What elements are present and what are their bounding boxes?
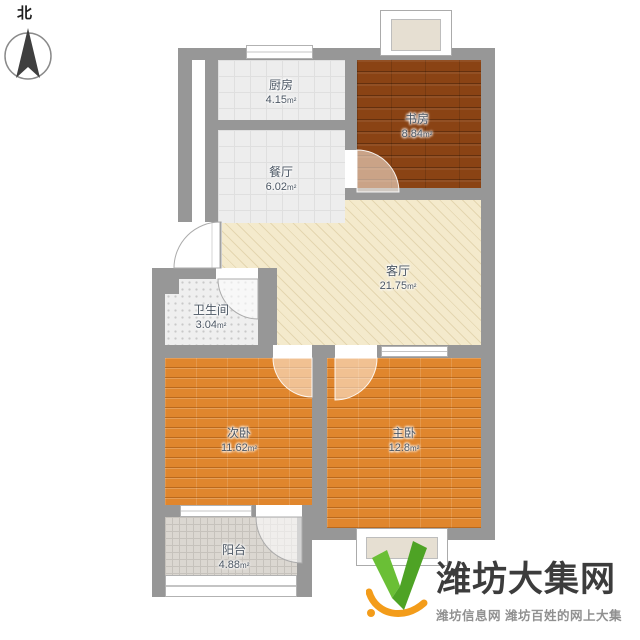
room-area-value: 11.62 [221, 442, 248, 454]
room-area-unit: m² [410, 444, 419, 453]
room-name: 卫生间 [193, 303, 229, 318]
wall-left-upper [178, 48, 192, 222]
wall-study-bottom [345, 188, 481, 200]
room-area-value: 21.75 [380, 280, 408, 292]
room-label-balcony: 阳台 4.88m² [219, 543, 250, 573]
wall-right [481, 48, 495, 540]
opening-bathroom-door [216, 268, 258, 279]
room-area-unit: m² [248, 444, 257, 453]
wall-bedroom-divider [312, 358, 327, 540]
room-area: 8.84m² [402, 127, 433, 142]
opening-balcony-door [256, 505, 302, 517]
wall-dining-study [345, 60, 357, 150]
room-area-unit: m² [407, 282, 416, 291]
room-area-value: 4.88 [219, 559, 240, 571]
room-area-value: 8.84 [402, 128, 423, 140]
room-area-unit: m² [287, 183, 296, 192]
room-area: 3.04m² [193, 318, 229, 333]
room-label-dining: 餐厅 6.02m² [266, 165, 297, 195]
window-balcony-band [165, 575, 297, 597]
room-area: 4.88m² [219, 558, 250, 573]
room-area: 6.02m² [266, 180, 297, 195]
room-label-master: 主卧 12.8m² [389, 426, 420, 456]
room-area-unit: m² [217, 321, 226, 330]
room-area-unit: m² [240, 561, 249, 570]
room-area-value: 4.15 [266, 94, 287, 106]
watermark-text: 潍坊大集网 潍坊信息网 潍坊百姓的网上大集 [436, 540, 622, 624]
room-label-living: 客厅 21.75m² [380, 264, 417, 294]
room-name: 阳台 [219, 543, 250, 558]
logo-v-left [372, 550, 400, 598]
compass-icon [2, 22, 54, 84]
wall-kitchen-dining [218, 120, 345, 130]
wall-kitchen-left [205, 48, 218, 222]
room-label-kitchen: 厨房 4.15m² [266, 78, 297, 108]
wall-balcony-right [297, 517, 312, 597]
watermark-tagline: 潍坊信息网 潍坊百姓的网上大集 [436, 605, 622, 624]
room-area-value: 6.02 [266, 181, 287, 193]
room-area: 11.62m² [221, 441, 257, 456]
watermark-v-logo-icon [366, 540, 428, 622]
window-living-master [381, 346, 448, 357]
watermark: 潍坊大集网 潍坊信息网 潍坊百姓的网上大集 [366, 540, 622, 624]
room-name: 书房 [402, 112, 433, 127]
room-area-unit: m² [287, 96, 296, 105]
room-area-value: 12.8 [389, 442, 410, 454]
window-bedroom2-balcony [180, 505, 252, 517]
room-area: 21.75m² [380, 279, 417, 294]
room-name: 客厅 [380, 264, 417, 279]
opening-master-door [335, 345, 377, 358]
compass-arrow [16, 28, 40, 78]
window-kitchen [246, 45, 313, 59]
bay-window-study-inner [391, 19, 441, 51]
room-label-study: 书房 8.84m² [402, 112, 433, 142]
logo-v-right [392, 541, 427, 610]
room-name: 餐厅 [266, 165, 297, 180]
entrance-door-leaf [212, 222, 221, 268]
entrance-door-arc [174, 222, 220, 268]
room-area: 4.15m² [266, 93, 297, 108]
room-name: 次卧 [221, 426, 257, 441]
watermark-site-name: 潍坊大集网 [436, 558, 622, 602]
room-name: 厨房 [266, 78, 297, 93]
room-label-bedroom2: 次卧 11.62m² [221, 426, 257, 456]
logo-swoosh-dot [367, 609, 375, 617]
wall-left-lower [152, 268, 165, 597]
compass-north-label: 北 [17, 2, 32, 23]
room-name: 主卧 [389, 426, 420, 441]
room-area-unit: m² [423, 130, 432, 139]
room-area: 12.8m² [389, 441, 420, 456]
opening-bedroom2-door [273, 345, 312, 358]
room-area-value: 3.04 [196, 319, 217, 331]
room-label-bathroom: 卫生间 3.04m² [193, 303, 229, 333]
